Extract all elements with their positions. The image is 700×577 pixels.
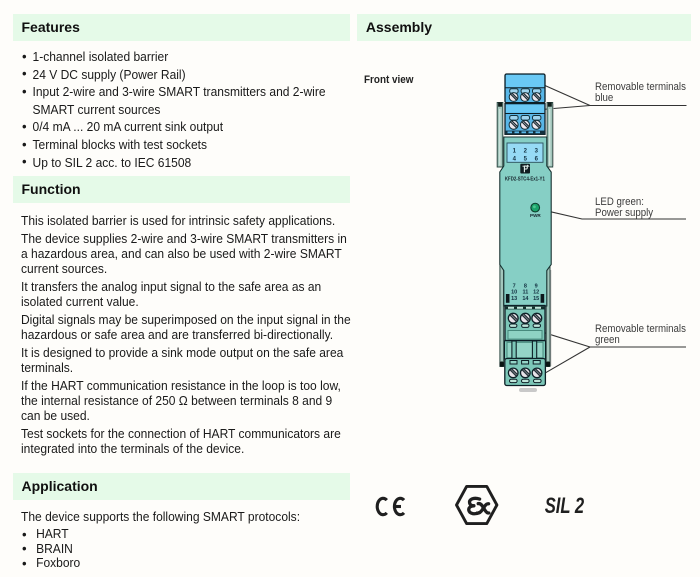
svg-text:11: 11: [522, 290, 528, 296]
svg-text:9: 9: [535, 284, 538, 290]
svg-text:10: 10: [511, 290, 517, 296]
svg-text:PWR: PWR: [530, 213, 541, 218]
svg-text:15: 15: [533, 296, 539, 302]
svg-text:8: 8: [524, 284, 527, 290]
svg-text:14: 14: [522, 296, 529, 302]
svg-text:KFD2-STC4-Ex1-Y1: KFD2-STC4-Ex1-Y1: [505, 177, 545, 183]
svg-text:12: 12: [533, 290, 539, 296]
svg-text:13: 13: [511, 296, 517, 302]
svg-text:7: 7: [513, 284, 516, 290]
svg-text:SIL 2: SIL 2: [545, 493, 585, 518]
